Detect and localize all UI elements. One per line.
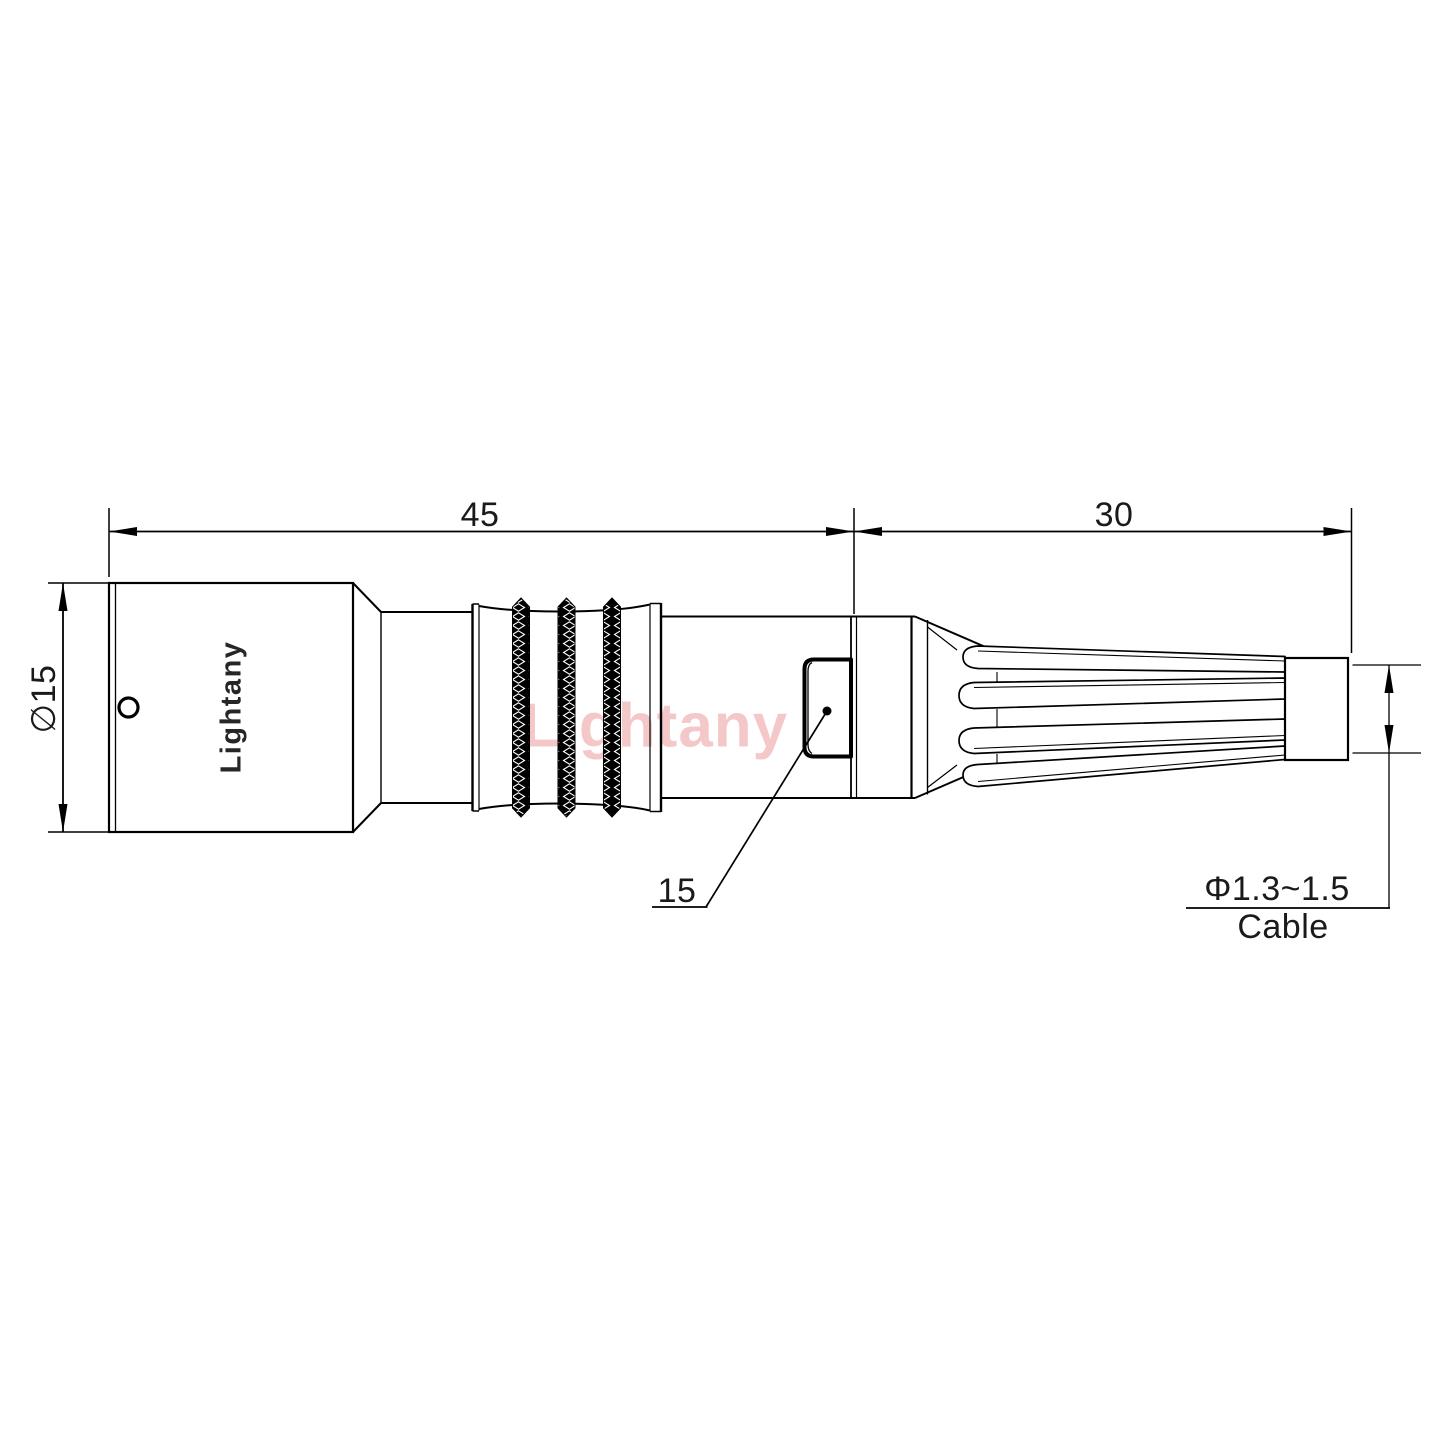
dim-label-30: 30	[1095, 498, 1134, 532]
knurl-band	[513, 598, 530, 817]
body-logo-text: Lightany	[218, 641, 247, 774]
boot-fin	[959, 678, 1285, 709]
connector-body	[109, 583, 472, 832]
arrowhead-left-45	[109, 527, 137, 536]
strain-relief-boot	[912, 617, 1286, 799]
arrowhead-right-45	[826, 527, 854, 536]
dim-label-diameter-15: ∅15	[27, 665, 61, 734]
body-hole	[119, 698, 138, 717]
arrowhead-up-cable	[1385, 665, 1394, 693]
cable-bushing	[1285, 658, 1348, 760]
knurl-section	[473, 598, 662, 817]
arrowhead-down-cable	[1385, 725, 1394, 753]
dim-label-45: 45	[461, 498, 500, 532]
callout-label-15: 15	[658, 874, 697, 908]
cable-diameter-range-label: Φ1.3~1.5	[1204, 872, 1350, 906]
arrowhead-down-dia	[59, 804, 68, 832]
arrowhead-left-30	[854, 527, 882, 536]
coupling-nut	[661, 617, 915, 799]
knurl-band	[604, 598, 621, 817]
cable-label: Cable	[1237, 910, 1328, 944]
arrowhead-right-30	[1324, 527, 1352, 536]
knurl-band	[558, 598, 575, 817]
arrowhead-up-dia	[59, 583, 68, 611]
page: { "drawing": { "watermark": "Lightany", …	[0, 0, 1440, 1440]
